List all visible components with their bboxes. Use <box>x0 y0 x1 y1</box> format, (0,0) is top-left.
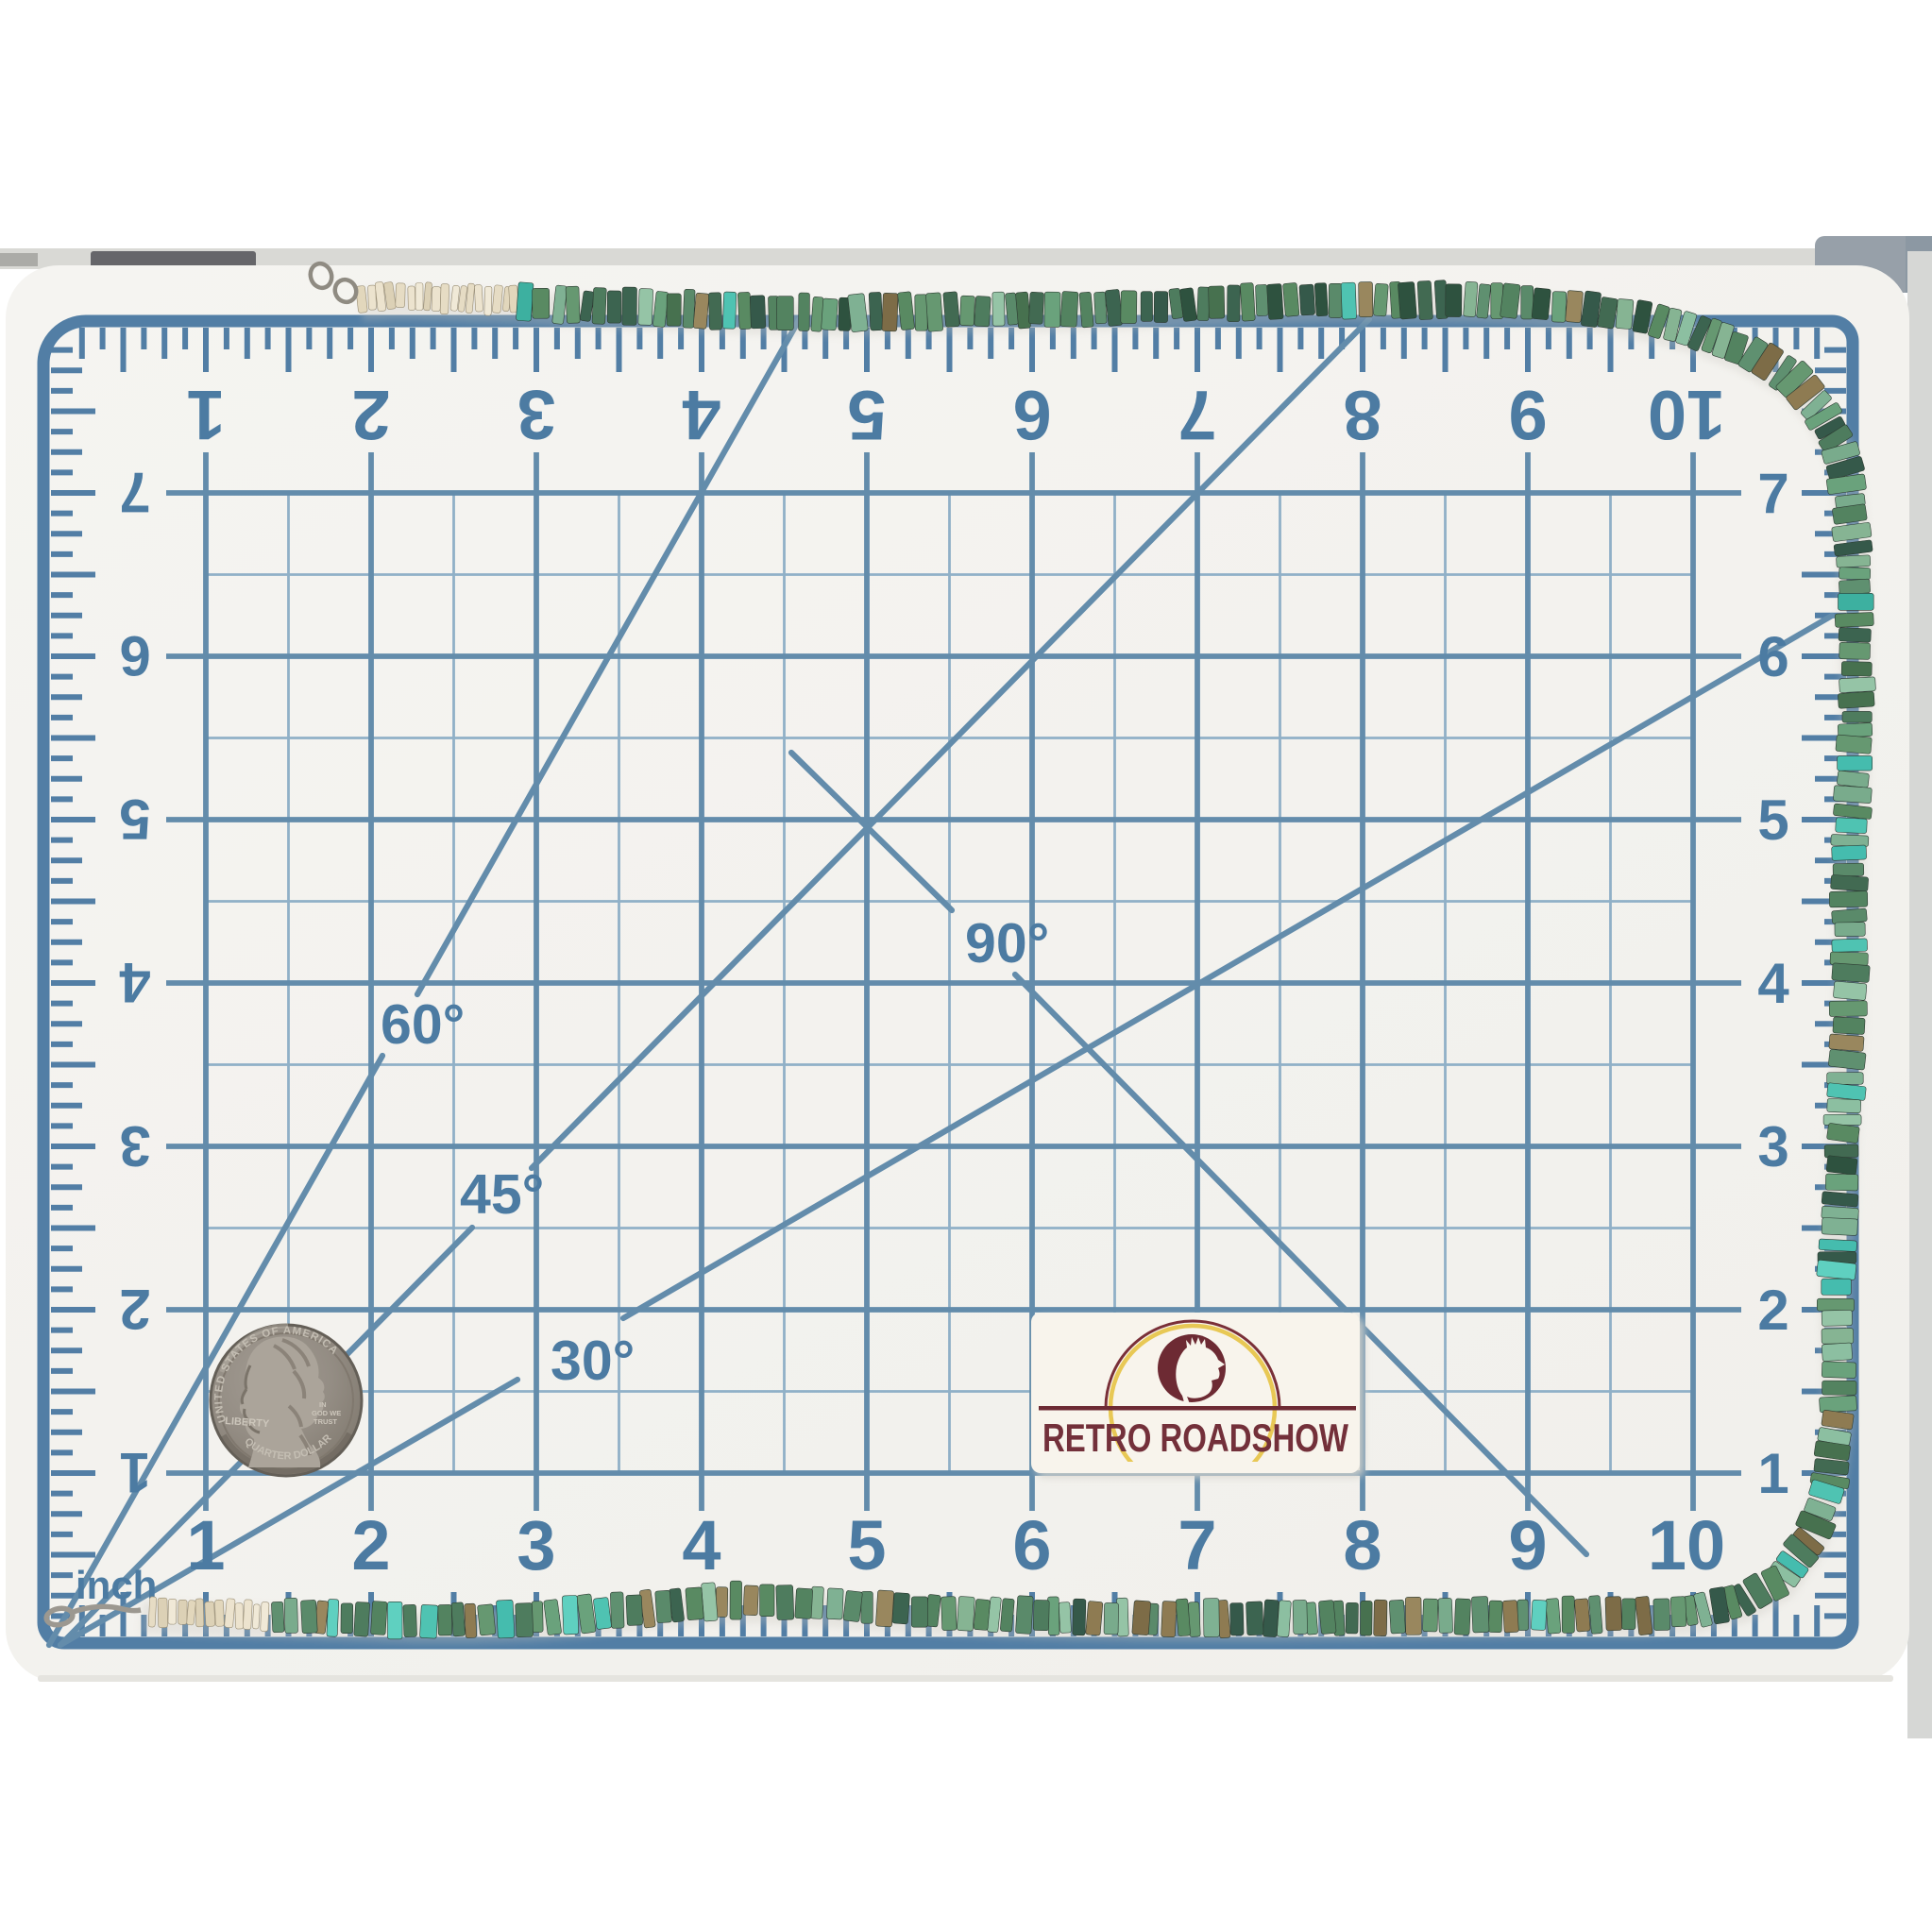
svg-text:7: 7 <box>1178 376 1216 454</box>
svg-text:6: 6 <box>119 624 150 687</box>
svg-text:7: 7 <box>1757 462 1788 525</box>
svg-text:4: 4 <box>682 1506 720 1585</box>
svg-text:3: 3 <box>119 1114 150 1178</box>
svg-text:IN: IN <box>319 1400 327 1409</box>
svg-text:TRUST: TRUST <box>314 1417 337 1426</box>
svg-text:5: 5 <box>847 1506 886 1585</box>
svg-text:8: 8 <box>1343 376 1381 454</box>
svg-text:GOD WE: GOD WE <box>312 1409 341 1417</box>
svg-text:4: 4 <box>119 951 151 1014</box>
svg-text:RETRO ROADSHOW: RETRO ROADSHOW <box>1042 1415 1348 1460</box>
svg-text:1: 1 <box>119 1441 150 1504</box>
svg-text:7: 7 <box>119 461 150 524</box>
svg-text:5: 5 <box>1757 788 1788 852</box>
svg-text:60°: 60° <box>381 993 465 1056</box>
svg-text:1: 1 <box>1757 1442 1788 1505</box>
svg-text:2: 2 <box>1757 1279 1788 1342</box>
svg-text:8: 8 <box>1343 1506 1381 1585</box>
svg-text:6: 6 <box>1757 625 1788 688</box>
svg-text:1: 1 <box>186 376 225 454</box>
svg-text:30°: 30° <box>551 1330 635 1392</box>
svg-text:45°: 45° <box>460 1163 544 1226</box>
svg-text:10: 10 <box>1648 1506 1725 1585</box>
svg-text:2: 2 <box>351 1506 390 1585</box>
svg-text:5: 5 <box>119 788 150 851</box>
svg-text:inch: inch <box>76 1563 157 1607</box>
svg-text:2: 2 <box>119 1278 150 1341</box>
svg-text:3: 3 <box>1757 1115 1788 1178</box>
svg-text:2: 2 <box>351 376 390 454</box>
svg-text:6: 6 <box>1012 1506 1051 1585</box>
svg-text:7: 7 <box>1178 1506 1216 1585</box>
svg-text:1: 1 <box>186 1506 225 1585</box>
svg-text:10: 10 <box>1648 376 1725 454</box>
svg-text:90°: 90° <box>965 912 1049 974</box>
svg-text:3: 3 <box>517 1506 555 1585</box>
svg-text:4: 4 <box>682 376 720 454</box>
svg-text:4: 4 <box>1757 952 1789 1015</box>
svg-text:9: 9 <box>1508 376 1547 454</box>
svg-text:5: 5 <box>847 376 886 454</box>
svg-text:6: 6 <box>1012 376 1051 454</box>
svg-text:9: 9 <box>1508 1506 1547 1585</box>
svg-text:3: 3 <box>517 376 555 454</box>
